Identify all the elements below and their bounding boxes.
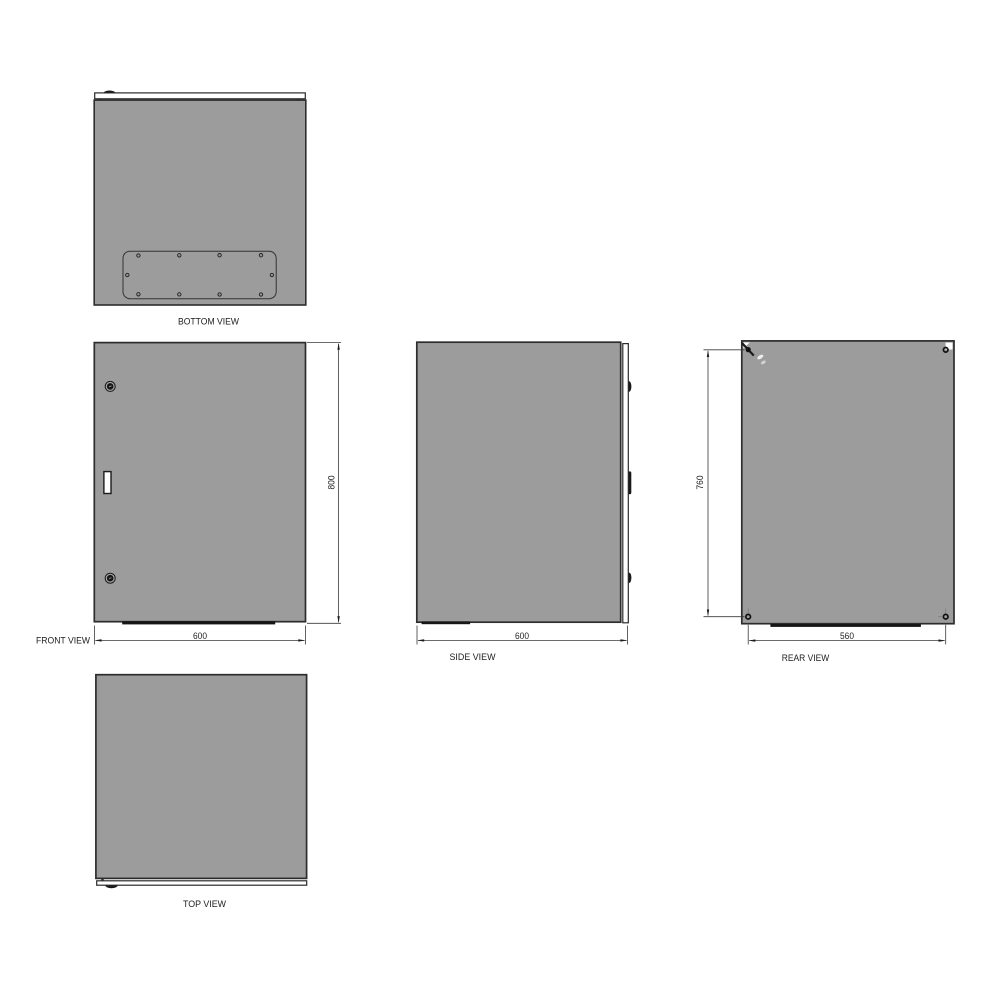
svg-text:SIDE VIEW: SIDE VIEW (450, 652, 496, 662)
svg-text:600: 600 (193, 631, 207, 641)
svg-text:560: 560 (840, 631, 854, 641)
svg-text:BOTTOM VIEW: BOTTOM VIEW (178, 317, 239, 327)
svg-text:FRONT VIEW: FRONT VIEW (36, 635, 90, 645)
svg-text:REAR VIEW: REAR VIEW (782, 653, 830, 663)
svg-text:600: 600 (515, 631, 529, 641)
svg-text:760: 760 (695, 476, 705, 490)
svg-text:800: 800 (326, 476, 336, 490)
svg-text:TOP VIEW: TOP VIEW (183, 899, 226, 909)
